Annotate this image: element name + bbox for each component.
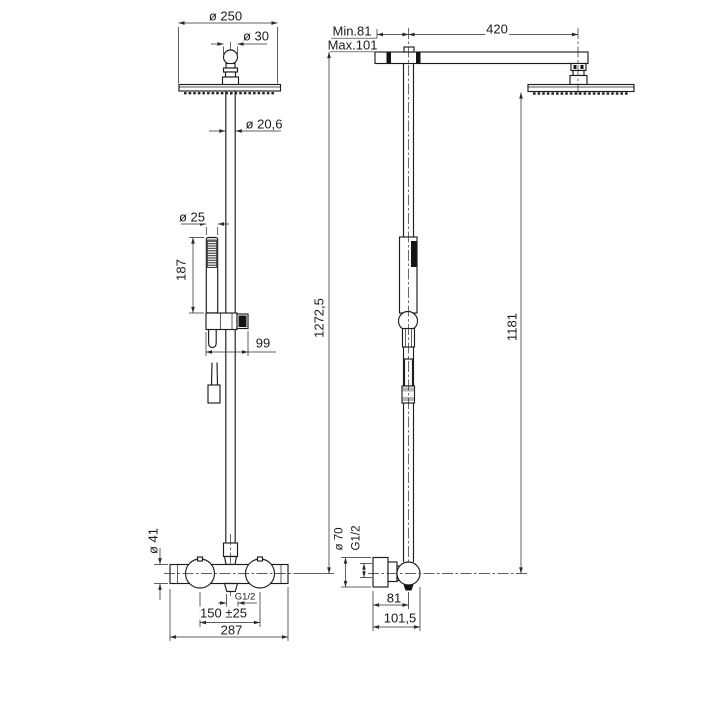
dim-handshower-length-lines bbox=[189, 238, 204, 314]
dim-supply-spacing: 150 ±25 bbox=[199, 607, 248, 620]
ball-joint-side bbox=[570, 64, 587, 85]
slider-bracket-front bbox=[206, 313, 248, 330]
shower-arm-side bbox=[375, 47, 588, 64]
overhead-shower-side bbox=[528, 85, 634, 94]
dim-hand-shower-diameter: ø 25 bbox=[178, 211, 206, 224]
dim-slider-bracket-width: 99 bbox=[255, 337, 271, 350]
dim-ball-joint-diameter: ø 30 bbox=[242, 30, 270, 43]
dim-head-plate-height: 1181 bbox=[506, 312, 519, 342]
dim-head-diameter: ø 250 bbox=[208, 10, 243, 23]
dim-valve-diameter-lines bbox=[154, 548, 168, 600]
dim-arm-length: 420 bbox=[485, 23, 509, 36]
shower-system-drawing bbox=[0, 0, 720, 720]
dim-valve-width: 287 bbox=[220, 623, 244, 636]
overhead-shower-front bbox=[179, 85, 281, 94]
valve-escutcheon-side bbox=[373, 558, 388, 588]
dim-valve-body-diameter: ø 41 bbox=[147, 527, 160, 555]
front-view bbox=[154, 23, 334, 641]
dim-wall-to-pipe-center: 81 bbox=[386, 591, 402, 604]
dim-escutcheon-lines bbox=[341, 558, 371, 588]
dim-hand-shower-length: 187 bbox=[175, 258, 188, 282]
dim-total-height: 1272,5 bbox=[313, 297, 326, 339]
dim-wall-distance-min: Min.81 bbox=[331, 25, 372, 38]
dim-riser-pipe-diameter: ø 20,6 bbox=[245, 117, 284, 130]
dim-escutcheon-diameter: ø 70 bbox=[334, 526, 346, 551]
hand-shower-front bbox=[206, 238, 217, 348]
ball-joint-front bbox=[223, 50, 239, 85]
dim-handshower-diameter-lines bbox=[181, 224, 229, 235]
bracket-knob-side bbox=[399, 312, 418, 331]
side-view bbox=[330, 28, 634, 631]
hand-shower-side bbox=[399, 237, 418, 347]
dim-outlet-thread: G1/2 bbox=[234, 592, 257, 602]
dim-wall-to-handle-front: 101,5 bbox=[383, 612, 418, 625]
shower-hose-front bbox=[208, 363, 220, 404]
dim-ball-joint-lines bbox=[211, 44, 267, 54]
mixer-valve-side bbox=[373, 558, 420, 591]
dim-inlet-thread-lines bbox=[360, 564, 372, 578]
dim-inlet-thread: G1/2 bbox=[351, 524, 363, 551]
dim-wall-distance-max: Max.101 bbox=[327, 38, 379, 51]
technical-drawing-canvas: ø 250 ø 30 ø 20,6 ø 25 187 99 ø 41 G1/2 … bbox=[0, 0, 720, 720]
